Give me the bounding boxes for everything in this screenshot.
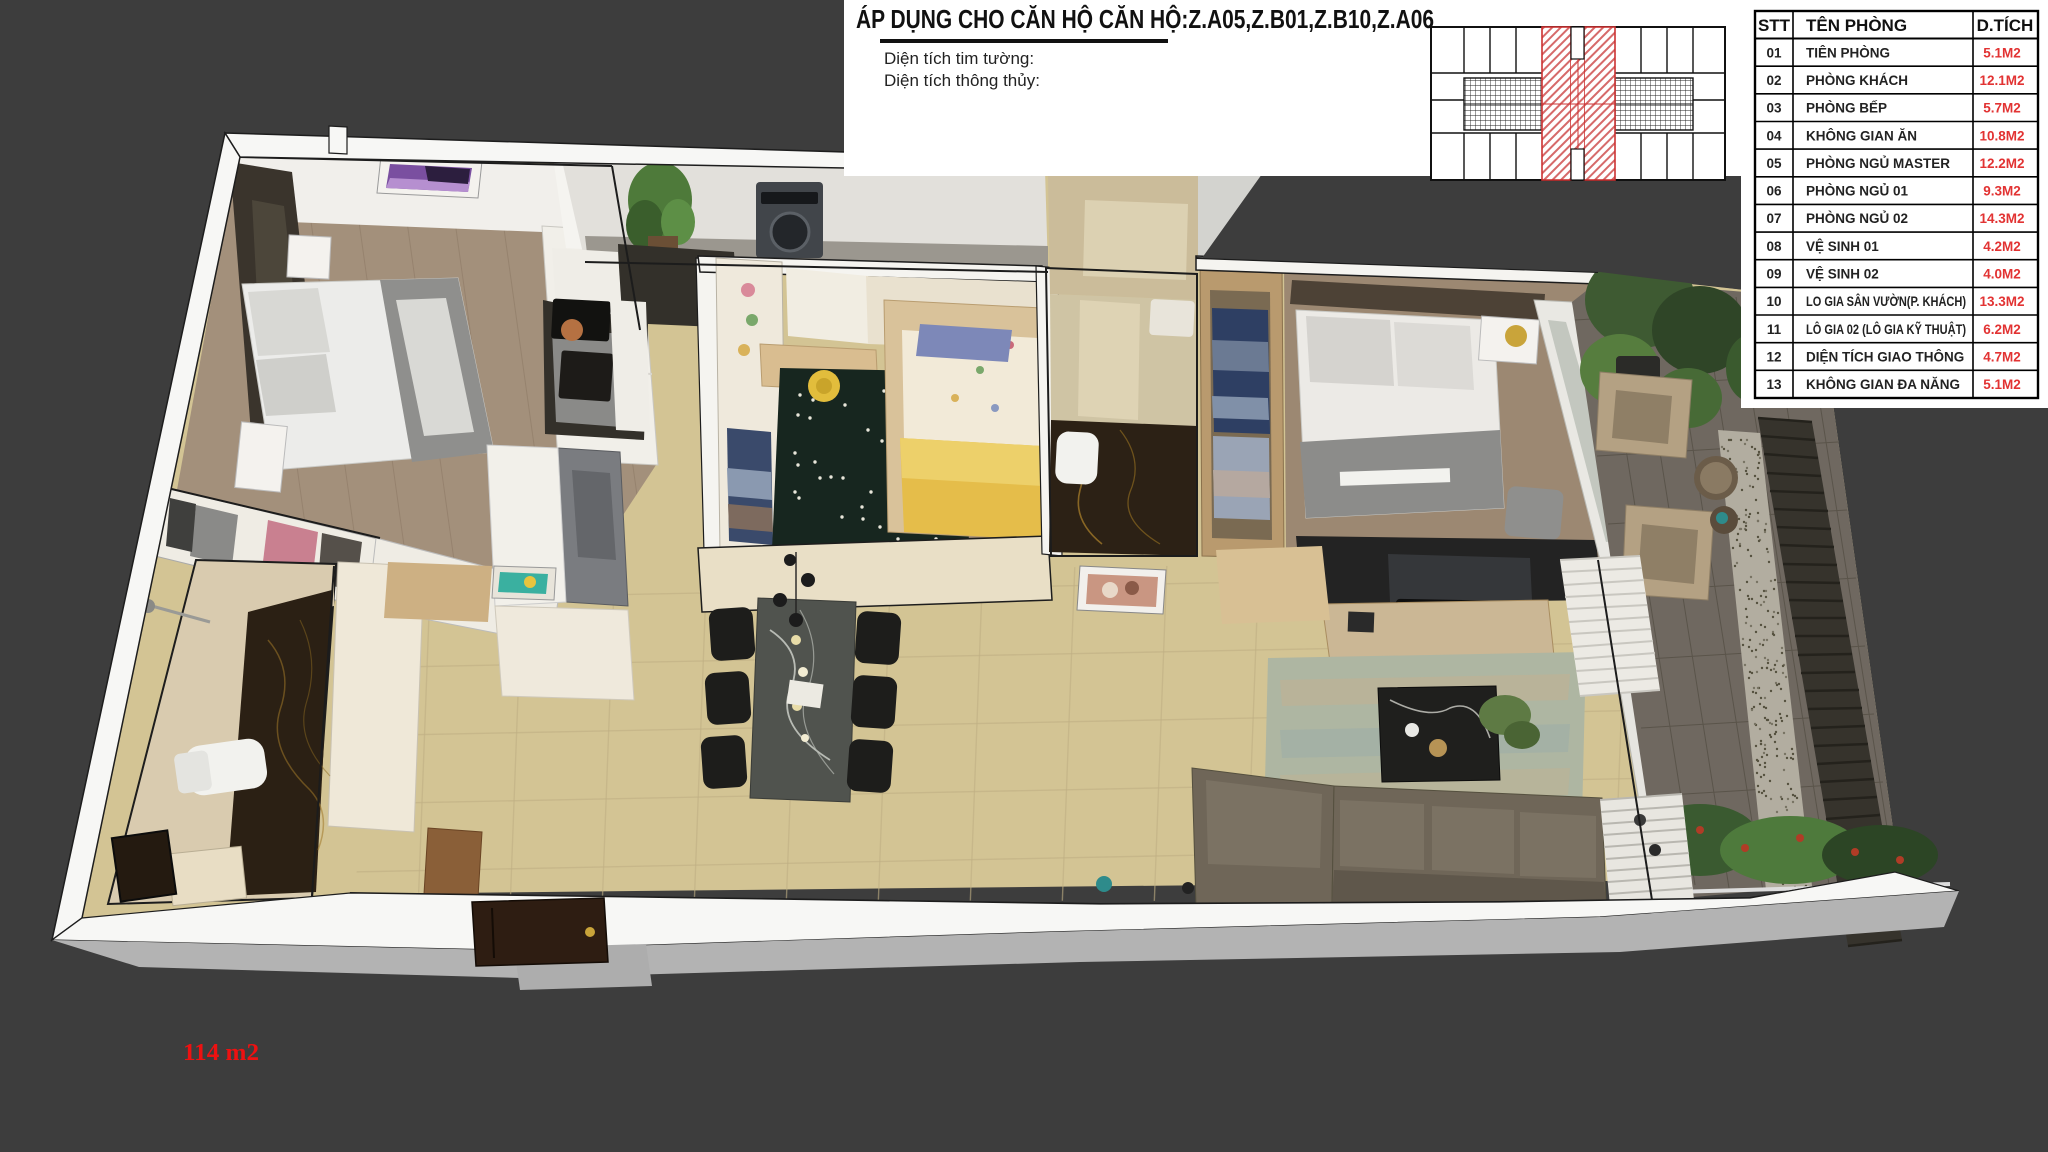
svg-text:PHÒNG NGỦ 02: PHÒNG NGỦ 02 — [1806, 211, 1908, 226]
svg-text:PHÒNG NGỦ 01: PHÒNG NGỦ 01 — [1806, 184, 1909, 199]
svg-text:PHÒNG NGỦ MASTER: PHÒNG NGỦ MASTER — [1806, 156, 1950, 171]
svg-text:9.3M2: 9.3M2 — [1983, 184, 2021, 199]
svg-text:Diện tích thông thủy:: Diện tích thông thủy: — [884, 71, 1040, 90]
svg-text:D.TÍCH: D.TÍCH — [1977, 16, 2034, 35]
svg-text:6.2M2: 6.2M2 — [1983, 322, 2021, 337]
svg-text:Diện tích tim tường:: Diện tích tim tường: — [884, 49, 1034, 68]
svg-text:14.3M2: 14.3M2 — [1979, 211, 2024, 226]
svg-text:TIÊN PHÒNG: TIÊN PHÒNG — [1806, 45, 1890, 60]
svg-text:01: 01 — [1766, 45, 1782, 60]
svg-text:13.3M2: 13.3M2 — [1979, 294, 2024, 309]
svg-text:10: 10 — [1766, 294, 1781, 309]
svg-text:12.1M2: 12.1M2 — [1979, 73, 2024, 88]
svg-text:12.2M2: 12.2M2 — [1979, 156, 2024, 171]
svg-text:03: 03 — [1766, 101, 1782, 116]
svg-text:08: 08 — [1766, 239, 1782, 254]
svg-text:5.7M2: 5.7M2 — [1983, 101, 2021, 116]
svg-text:11: 11 — [1767, 322, 1782, 337]
svg-text:5.1M2: 5.1M2 — [1983, 377, 2021, 392]
svg-text:4.0M2: 4.0M2 — [1983, 267, 2021, 282]
svg-text:KHÔNG GIAN ĂN: KHÔNG GIAN ĂN — [1806, 128, 1917, 143]
svg-text:05: 05 — [1766, 156, 1782, 171]
svg-text:07: 07 — [1766, 211, 1781, 226]
svg-text:09: 09 — [1766, 267, 1781, 282]
svg-text:PHÒNG BẾP: PHÒNG BẾP — [1806, 101, 1887, 116]
svg-text:5.1M2: 5.1M2 — [1983, 45, 2021, 60]
svg-text:06: 06 — [1766, 184, 1782, 199]
svg-text:04: 04 — [1766, 128, 1782, 143]
svg-text:ÁP DỤNG CHO CĂN HỘ CĂN HỘ:Z.A0: ÁP DỤNG CHO CĂN HỘ CĂN HỘ:Z.A05,Z.B01,Z.… — [856, 4, 1434, 34]
svg-text:STT: STT — [1758, 16, 1791, 35]
svg-text:LÔ GIA 02 (LÔ GIA KỸ THUẬT): LÔ GIA 02 (LÔ GIA KỸ THUẬT) — [1806, 322, 1966, 337]
svg-text:KHÔNG GIAN ĐA NĂNG: KHÔNG GIAN ĐA NĂNG — [1806, 377, 1960, 392]
svg-text:4.2M2: 4.2M2 — [1983, 239, 2021, 254]
svg-text:VỆ SINH 01: VỆ SINH 01 — [1806, 239, 1879, 254]
svg-text:VỆ SINH 02: VỆ SINH 02 — [1806, 267, 1879, 282]
svg-text:DIỆN TÍCH GIAO THÔNG: DIỆN TÍCH GIAO THÔNG — [1806, 350, 1964, 365]
svg-text:12: 12 — [1766, 350, 1781, 365]
svg-text:10.8M2: 10.8M2 — [1979, 128, 2024, 143]
svg-text:PHÒNG KHÁCH: PHÒNG KHÁCH — [1806, 73, 1908, 88]
svg-text:TÊN PHÒNG: TÊN PHÒNG — [1806, 16, 1907, 35]
svg-text:02: 02 — [1766, 73, 1781, 88]
svg-text:114 m2: 114 m2 — [183, 1040, 259, 1066]
svg-text:4.7M2: 4.7M2 — [1983, 350, 2021, 365]
svg-text:13: 13 — [1766, 377, 1782, 392]
svg-text:LO GIA SÂN VƯỜN(P. KHÁCH): LO GIA SÂN VƯỜN(P. KHÁCH) — [1806, 294, 1966, 309]
